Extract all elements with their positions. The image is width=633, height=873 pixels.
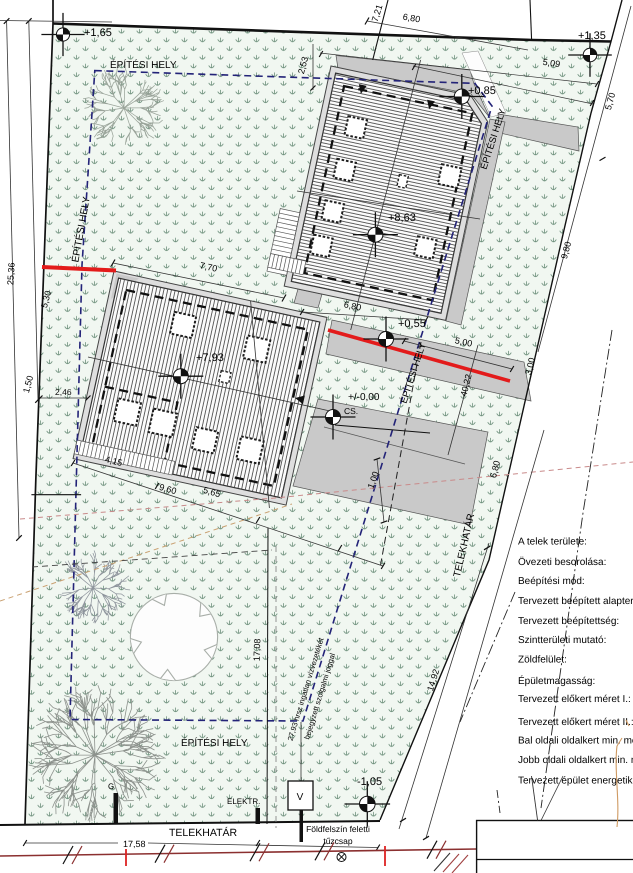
svg-text:+1,65: +1,65 [84,27,112,39]
svg-text:17,58: 17,58 [123,839,146,849]
svg-text:Bal oldali oldalkert min. mére: Bal oldali oldalkert min. méret [518,736,633,747]
svg-text:Földfelszín feletti: Földfelszín feletti [306,824,370,834]
svg-text:Szintterületi mutató:: Szintterületi mutató: [518,635,606,646]
svg-text:25,36: 25,36 [5,262,16,285]
svg-text:ÉPÍTÉSI HELY: ÉPÍTÉSI HELY [110,59,177,71]
svg-text:Zöldfelület:: Zöldfelület: [518,654,567,665]
svg-text:Tervezett beépített alapterüle: Tervezett beépített alapterület [518,596,633,607]
svg-text:Övezeti besorolása:: Övezeti besorolása: [518,556,606,568]
svg-text:+8,63: +8,63 [388,212,416,224]
svg-text:+1,35: +1,35 [578,30,606,42]
svg-text:Tervezett beépítettség:: Tervezett beépítettség: [518,616,619,627]
svg-text:G: G [108,782,114,791]
svg-text:Épületmagasság:: Épületmagasság: [518,675,595,687]
svg-text:TELEKHATÁR: TELEKHATÁR [169,826,237,839]
svg-text:tűzcsap: tűzcsap [323,836,353,846]
svg-text:Tervezett előkert méret II.:: Tervezett előkert méret II.: [518,717,633,728]
svg-text:+0,85: +0,85 [468,85,496,97]
svg-text:Tervezett épület energetikai: Tervezett épület energetikai [518,775,633,786]
svg-text:2,46: 2,46 [55,387,72,397]
svg-text:+7,93: +7,93 [196,352,224,364]
svg-text:A telek területe:: A telek területe: [518,536,587,547]
svg-text:CS.: CS. [344,406,358,416]
svg-text:Tervezett előkert méret I.:: Tervezett előkert méret I.: [518,694,631,705]
svg-text:+/-0,00: +/-0,00 [348,392,380,403]
svg-text:17,08: 17,08 [252,638,263,661]
svg-text:V: V [297,792,304,803]
svg-text:ELEKTR.: ELEKTR. [227,797,260,806]
svg-text:Beépítési mód:: Beépítési mód: [518,576,585,587]
svg-text:-1,05: -1,05 [357,776,382,788]
svg-text:+0,55: +0,55 [398,318,426,330]
svg-text:ÉPÍTÉSI HELY: ÉPÍTÉSI HELY [181,737,248,749]
